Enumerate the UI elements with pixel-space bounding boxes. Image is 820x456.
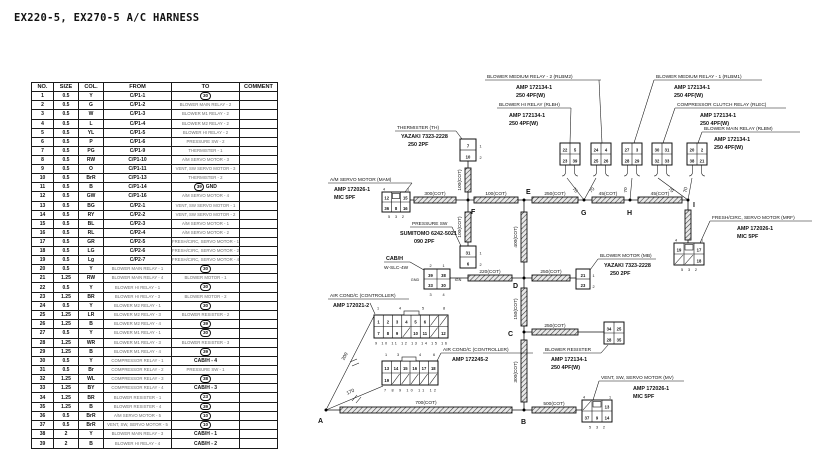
wire-label-70-i2: 70 bbox=[683, 186, 690, 192]
pin-number: 4 bbox=[383, 188, 385, 192]
tube-label-300-v: 300(COT) bbox=[513, 361, 519, 383]
pin-number: 8 bbox=[443, 307, 445, 311]
pin-number: 3 bbox=[397, 353, 399, 357]
device-spec: 250 4PF(W) bbox=[714, 145, 743, 151]
pin-number: 1 bbox=[479, 145, 481, 149]
label-cab-h: CAB/H W-SLC-4W bbox=[384, 256, 424, 271]
relay-pigtail-hooks bbox=[562, 165, 705, 176]
device-part: AMP 172134-1 bbox=[714, 137, 750, 143]
gnd-label: GND bbox=[411, 278, 420, 282]
pin-number: 4 bbox=[583, 396, 585, 400]
tube-label-100-down: 100(COT) bbox=[457, 216, 463, 238]
wire-ref: 19 bbox=[677, 248, 682, 253]
device-spec: 250 2PF bbox=[408, 142, 429, 148]
device-spec: 250 4PF(W) bbox=[509, 121, 538, 127]
connector-blower-hi-relay: 22 5 23 39 bbox=[560, 143, 580, 165]
tube-label-500: 500(COT) bbox=[543, 401, 565, 407]
pin-numbers: 7 8 9 10 11 12 bbox=[384, 389, 436, 393]
tube-label-400: 400(COT) bbox=[513, 226, 519, 248]
wire-ref: 19 bbox=[384, 378, 389, 383]
wire-tick-marks bbox=[350, 359, 361, 403]
wire-ref: 28 bbox=[625, 159, 630, 164]
wire-ref: 33 bbox=[665, 159, 670, 164]
wire-ref: 16 bbox=[403, 206, 408, 211]
wire-ref: 23 bbox=[581, 283, 586, 288]
wire-ref: 35 bbox=[617, 338, 622, 343]
label-vent-sw-servo-motor: VENT, SW, SERVO MOTOR (MV) AMP 172026-1 … bbox=[593, 375, 684, 400]
device-part: AMP 172134-1 bbox=[509, 113, 545, 119]
device-name: BLOWER RESISTER bbox=[545, 347, 592, 353]
wire-ref: 39 bbox=[428, 273, 433, 278]
device-name: BLOWER MAIN RELAY (RLBM) bbox=[704, 126, 773, 132]
pin-number: 2 bbox=[479, 263, 481, 267]
wire-label-70-g2: 70 bbox=[588, 186, 596, 194]
connector-thermister: 7 10 1 2 bbox=[460, 139, 482, 161]
device-spec: MIC 5PF bbox=[737, 234, 759, 240]
wire-ref: 29 bbox=[635, 159, 640, 164]
tube-label-45-gh: 45(COT) bbox=[599, 191, 618, 197]
device-spec: 250 4PF(W) bbox=[674, 93, 703, 99]
wire-ref: 30 bbox=[655, 148, 660, 153]
node-letter-d: D bbox=[513, 283, 518, 290]
device-spec: 250 4PF(W) bbox=[551, 365, 580, 371]
device-part: AMP 172245-2 bbox=[452, 357, 488, 363]
pin-number: 2 bbox=[592, 285, 594, 289]
connector-blower-medium-relay-2: 24 4 25 26 bbox=[591, 143, 611, 165]
connector-controller-cp2: 13 14 15 16 17 18 19 1 3 4 6 7 8 9 10 11… bbox=[382, 353, 438, 393]
wire-ref: 12 bbox=[441, 331, 446, 336]
wire-ref: 36 bbox=[384, 206, 389, 211]
wire-ref: 21 bbox=[581, 273, 586, 278]
device-name: VENT, SW, SERVO MOTOR (MV) bbox=[601, 375, 674, 381]
device-name: PRESSURE SW bbox=[412, 221, 448, 227]
connector-am-servo-motor: 12 15 36 8 16 4 1 5 3 2 bbox=[382, 188, 410, 220]
wire-ref: 30 bbox=[441, 283, 446, 288]
wire-ref: 13 bbox=[605, 405, 610, 410]
label-blower-hi-relay: BLOWER HI RELAY (RLBH) AMP 172134-1 250 … bbox=[497, 102, 571, 143]
label-blower-medium-relay-2: BLOWER MEDIUM RELAY - 2 (RLBM2) AMP 1721… bbox=[485, 74, 602, 143]
device-name: BLOWER MOTOR (MB) bbox=[600, 253, 652, 259]
tube-label-300: 300(COT) bbox=[424, 191, 446, 197]
label-blower-medium-relay-1: BLOWER MEDIUM RELAY - 1 (RLBM1) AMP 1721… bbox=[634, 74, 762, 143]
wire-label-70-g1: 70 bbox=[571, 186, 579, 194]
wire-ref: 25 bbox=[617, 327, 622, 332]
tube-label-700: 700(COT) bbox=[415, 400, 437, 406]
pin-number: 1 bbox=[479, 252, 481, 256]
wire-ref: 28 bbox=[607, 338, 612, 343]
wire-label-200: 200 bbox=[341, 351, 350, 361]
wire-label-70-h: 70 bbox=[623, 187, 629, 193]
device-part: AMP 172134-1 bbox=[551, 357, 587, 363]
harness-diagram: 300(COT) 100(COT) 250(COT) 45(COT) 45(CO… bbox=[0, 0, 820, 456]
pin-number: 2 bbox=[479, 156, 481, 160]
connector-blower-resister: 34 25 28 35 bbox=[604, 322, 624, 344]
device-spec: MIC 5PF bbox=[633, 394, 655, 400]
tube-label-250-d: 250(COT) bbox=[540, 269, 562, 275]
wire-ref: 10 bbox=[413, 331, 418, 336]
label-pressure-sw: PRESSURE SW SUMITOMO 6242-5021 090 2PF bbox=[400, 221, 461, 246]
device-part: AMP 172026-1 bbox=[334, 187, 370, 193]
wire-ref: 14 bbox=[605, 416, 610, 421]
device-part: AMP 172134-1 bbox=[516, 85, 552, 91]
node-letter-b: B bbox=[521, 419, 526, 426]
wire-ref: 37 bbox=[585, 416, 590, 421]
connector-cab-h: 39 38 33 30 2 1 3 4 GND IGN bbox=[411, 264, 462, 297]
label-controller-cp2: AIR COND/C (CONTROLLER) AMP 172245-2 bbox=[437, 347, 533, 363]
device-part: AMP 172026-1 bbox=[633, 386, 669, 392]
connector-blower-motor: 21 23 1 2 bbox=[576, 269, 595, 289]
wire-ref: 31 bbox=[466, 251, 471, 256]
device-part: AMP 172134-1 bbox=[674, 85, 710, 91]
tube-label-220: 220(COT) bbox=[479, 269, 501, 275]
device-name: A/M SERVO MOTOR (MAM) bbox=[330, 177, 392, 183]
pin-number: 6 bbox=[433, 353, 435, 357]
tube-label-150: 150(COT) bbox=[513, 298, 519, 320]
pin-number: 4 bbox=[675, 239, 677, 243]
label-thermister: THERMISTER (TH) YAZAKI 7323-2228 250 2PF bbox=[395, 125, 462, 148]
device-part: SUMITOMO 6242-5021 bbox=[400, 231, 457, 237]
relay-labels: BLOWER MEDIUM RELAY - 2 (RLBM2) AMP 1721… bbox=[485, 74, 800, 151]
wire-ref: 15 bbox=[403, 196, 408, 201]
relay-connectors: 22 5 23 39 24 4 25 26 27 3 28 29 30 bbox=[560, 143, 707, 176]
wire-ref: 27 bbox=[625, 148, 630, 153]
node-letter-i: I bbox=[693, 202, 695, 209]
label-blower-resister: BLOWER RESISTER AMP 172134-1 250 4PF(W) bbox=[543, 345, 608, 371]
pin-number: 1 bbox=[592, 274, 594, 278]
pin-numbers: 5 3 2 bbox=[589, 426, 605, 430]
pin-numbers: 5 3 2 bbox=[681, 268, 697, 272]
connector-freshcirc-servo-motor: 19 17 18 4 1 5 3 2 bbox=[674, 239, 704, 273]
wire-ref: 17 bbox=[422, 366, 427, 371]
device-name: COMPRESSOR CLUTCH RELAY (RLEC) bbox=[677, 102, 767, 108]
pin-number: 4 bbox=[442, 293, 444, 297]
connector-controller-cp1: 1 2 3 4 5 6 7 8 9 10 11 12 1 4 5 8 9 10 … bbox=[374, 307, 448, 346]
wire-ref: 31 bbox=[665, 148, 670, 153]
device-spec: 250 4PF(W) bbox=[516, 93, 545, 99]
wire-ref: 10 bbox=[466, 155, 471, 160]
pin-number: 1 bbox=[609, 396, 611, 400]
connector-compressor-clutch-relay: 30 31 32 33 bbox=[652, 143, 672, 165]
wire-ref: 16 bbox=[412, 366, 417, 371]
wire-ref: 39 bbox=[573, 159, 578, 164]
pin-numbers: 9 10 11 12 13 14 15 16 bbox=[375, 342, 447, 346]
label-controller-cp1: AIR COND/C (CONTROLLER) AMP 172021-2 bbox=[328, 293, 409, 314]
tube-label-100-up: 100(COT) bbox=[457, 169, 463, 191]
device-name: CAB/H bbox=[386, 256, 403, 262]
wire-ref: 23 bbox=[563, 159, 568, 164]
wire-ref: 20 bbox=[690, 148, 695, 153]
wire-ref: 34 bbox=[607, 327, 612, 332]
node-letter-f: F bbox=[471, 209, 476, 216]
pin-number: 5 bbox=[422, 307, 424, 311]
device-name: BLOWER MEDIUM RELAY - 2 (RLBM2) bbox=[487, 74, 573, 80]
device-part: AMP 172134-1 bbox=[700, 113, 736, 119]
node-letter-c: C bbox=[508, 331, 513, 338]
device-spec: 090 2PF bbox=[414, 239, 435, 245]
pin-number: 1 bbox=[385, 353, 387, 357]
wire-ref: 17 bbox=[697, 248, 702, 253]
device-part: AMP 172021-2 bbox=[333, 303, 369, 309]
label-blower-motor: BLOWER MOTOR (MB) YAZAKI 7323-2228 250 2… bbox=[590, 253, 656, 277]
wire-ref: 12 bbox=[384, 196, 389, 201]
wire-ref: 25 bbox=[594, 159, 599, 164]
device-name: AIR COND/C (CONTROLLER) bbox=[443, 347, 509, 353]
device-spec: 250 2PF bbox=[610, 271, 631, 277]
wire-ref: 18 bbox=[431, 366, 436, 371]
device-name: THERMISTER (TH) bbox=[397, 125, 440, 131]
wire-ref: 38 bbox=[690, 159, 695, 164]
tube-label-100-fe: 100(COT) bbox=[485, 191, 507, 197]
wire-ref: 13 bbox=[384, 366, 389, 371]
connector-blower-main-relay: 20 2 38 21 bbox=[687, 143, 707, 165]
pin-number: 1 bbox=[377, 307, 379, 311]
ign-label: IGN bbox=[455, 278, 462, 282]
pin-number: 1 bbox=[442, 264, 444, 268]
node-letter-h: H bbox=[627, 210, 632, 217]
wire-ref: 24 bbox=[594, 148, 599, 153]
wire-ref: 33 bbox=[428, 283, 433, 288]
label-blower-main-relay: BLOWER MAIN RELAY (RLBM) AMP 172134-1 25… bbox=[698, 126, 800, 151]
connector-vent-sw-servo-motor: 13 37 9 14 4 1 5 3 2 bbox=[582, 396, 612, 430]
pin-number: 4 bbox=[399, 307, 401, 311]
pin-number: 3 bbox=[429, 293, 431, 297]
tube-label-45-hi: 45(COT) bbox=[651, 191, 670, 197]
wire-ref: 38 bbox=[441, 273, 446, 278]
wire-ref: 14 bbox=[394, 366, 399, 371]
label-freshcirc-servo-motor: FRESH/CIRC, SERVO MOTOR (MRF) AMP 172026… bbox=[700, 215, 812, 243]
node-letter-g: G bbox=[581, 210, 587, 217]
device-name: BLOWER MEDIUM RELAY - 1 (RLBM1) bbox=[656, 74, 742, 80]
pin-numbers: 5 3 2 bbox=[388, 215, 404, 219]
wire-ref: 26 bbox=[604, 159, 609, 164]
wire-ref: 18 bbox=[697, 259, 702, 264]
connector-blower-medium-relay-1: 27 3 28 29 bbox=[622, 143, 642, 165]
device-name: BLOWER HI RELAY (RLBH) bbox=[499, 102, 560, 108]
wire-ref: 21 bbox=[700, 159, 705, 164]
device-name: AIR COND/C (CONTROLLER) bbox=[330, 293, 396, 299]
device-part: W-SLC-4W bbox=[384, 265, 409, 271]
wire-ref: 22 bbox=[563, 148, 568, 153]
node-letter-a: A bbox=[318, 418, 323, 425]
device-name: FRESH/CIRC, SERVO MOTOR (MRF) bbox=[712, 215, 795, 221]
device-part: YAZAKI 7323-2228 bbox=[401, 134, 448, 140]
pin-number: 4 bbox=[419, 353, 421, 357]
device-spec: MIC 5PF bbox=[334, 195, 356, 201]
connector-pressure-sw: 31 6 1 2 bbox=[460, 246, 482, 268]
wire-ref: 11 bbox=[423, 331, 428, 336]
tube-label-250-c: 250(COT) bbox=[544, 323, 566, 329]
device-part: YAZAKI 7323-2228 bbox=[604, 263, 651, 269]
wire-label-170: 170 bbox=[346, 388, 356, 397]
tube-label-250-eg: 250(COT) bbox=[544, 191, 566, 197]
wire-ref: 15 bbox=[403, 366, 408, 371]
pin-number: 2 bbox=[429, 264, 431, 268]
wire-ref: 32 bbox=[655, 159, 660, 164]
device-part: AMP 172026-1 bbox=[737, 226, 773, 232]
node-letter-e: E bbox=[526, 189, 531, 196]
